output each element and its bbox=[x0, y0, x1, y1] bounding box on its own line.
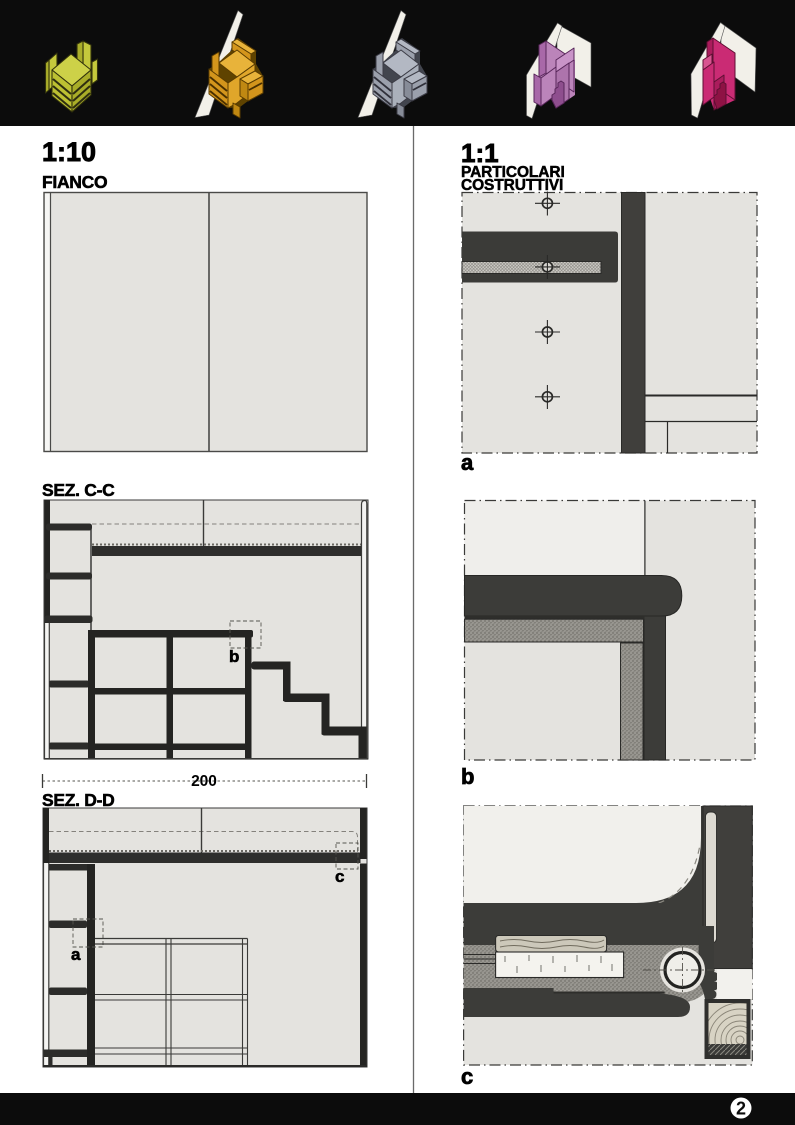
svg-text:c: c bbox=[461, 1064, 473, 1089]
svg-text:a: a bbox=[461, 450, 474, 475]
svg-text:a: a bbox=[71, 945, 81, 964]
svg-text:2: 2 bbox=[736, 1099, 746, 1119]
svg-text:1:10: 1:10 bbox=[42, 137, 96, 167]
svg-text:200: 200 bbox=[191, 773, 217, 790]
svg-text:b: b bbox=[229, 647, 239, 666]
svg-text:COSTRUTTIVI: COSTRUTTIVI bbox=[461, 177, 563, 194]
svg-text:SEZ. D-D: SEZ. D-D bbox=[42, 790, 114, 810]
svg-text:c: c bbox=[335, 867, 344, 886]
svg-text:FIANCO: FIANCO bbox=[42, 172, 107, 192]
svg-text:SEZ. C-C: SEZ. C-C bbox=[42, 480, 115, 500]
svg-text:b: b bbox=[461, 764, 474, 789]
